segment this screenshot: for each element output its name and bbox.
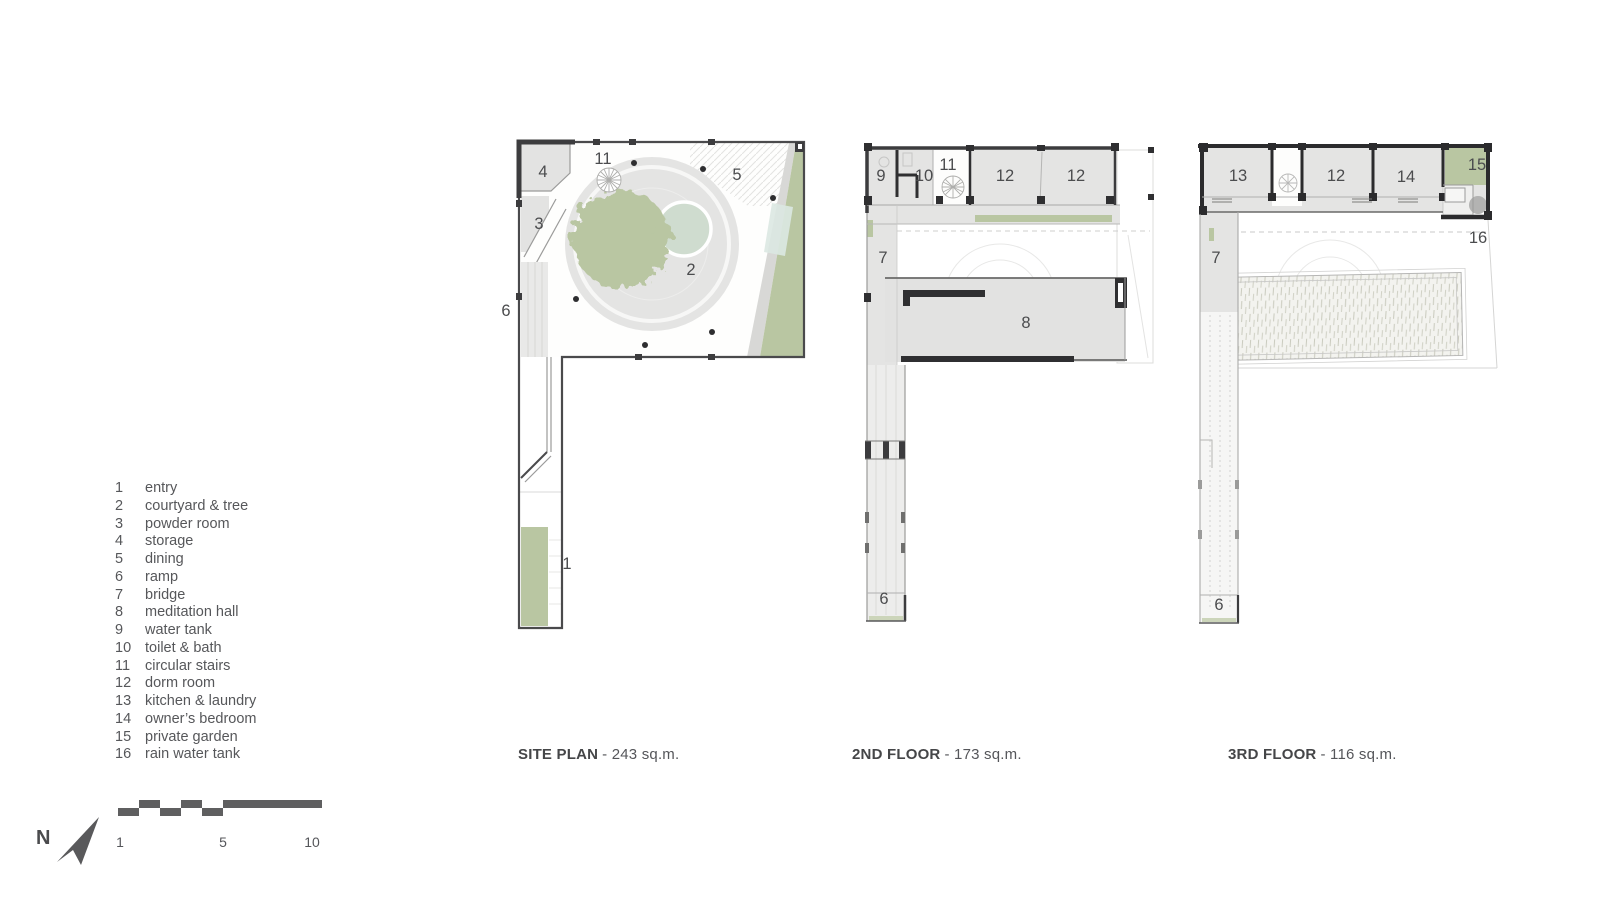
second-floor-title-name: 2ND FLOOR <box>852 746 940 763</box>
third-floor-drawing: 13 12 14 15 16 7 6 <box>1178 130 1508 640</box>
room-label-storage: 4 <box>538 163 547 181</box>
second-floor-title: 2ND FLOOR- 173 sq.m. <box>852 746 1022 763</box>
second-floor-drawing: 9 10 11 12 12 7 8 6 <box>845 130 1165 640</box>
legend-item: 3powder room <box>115 516 257 534</box>
room-label-ramp: 6 <box>1214 596 1223 614</box>
legend-item: 2courtyard & tree <box>115 498 257 516</box>
legend-label: kitchen & laundry <box>145 693 256 709</box>
legend-item: 5dining <box>115 551 257 569</box>
legend-number: 14 <box>115 711 145 729</box>
legend-item: 7bridge <box>115 587 257 605</box>
second-floor-title-area: - 173 sq.m. <box>944 746 1021 763</box>
room-label-entry: 1 <box>562 555 571 573</box>
spiral-stair-icon <box>597 168 621 192</box>
legend-number: 7 <box>115 587 145 605</box>
legend-item: 11circular stairs <box>115 658 257 676</box>
third-floor-title-name: 3RD FLOOR <box>1228 746 1316 763</box>
room-label-courtyard: 2 <box>686 261 695 279</box>
legend-label: dining <box>145 551 184 567</box>
hatched-roof <box>1213 268 1467 364</box>
corner-column <box>795 142 804 152</box>
legend-number: 10 <box>115 640 145 658</box>
legend-number: 9 <box>115 622 145 640</box>
legend-item: 10toilet & bath <box>115 640 257 658</box>
planter-strip <box>975 215 1112 222</box>
room-label-ramp: 6 <box>501 302 510 320</box>
room-label-rain-water-tank: 16 <box>1469 229 1487 247</box>
legend-item: 16rain water tank <box>115 746 257 764</box>
room-label-stairs: 11 <box>939 156 956 174</box>
ramp-strip <box>521 262 548 357</box>
room-label-toilet: 10 <box>915 167 933 185</box>
legend-item: 14owner’s bedroom <box>115 711 257 729</box>
legend-number: 11 <box>115 658 145 676</box>
legend-item: 4storage <box>115 533 257 551</box>
entry-green-strip <box>521 527 548 626</box>
legend-item: 6ramp <box>115 569 257 587</box>
room-label-dorm-1: 12 <box>996 167 1014 185</box>
legend-item: 9water tank <box>115 622 257 640</box>
bridge-junction <box>865 441 905 459</box>
room-label-ramp: 6 <box>879 590 888 608</box>
legend-number: 15 <box>115 729 145 747</box>
legend-number: 5 <box>115 551 145 569</box>
spiral-stair-icon <box>942 176 964 198</box>
room-label-bridge: 7 <box>1211 249 1220 267</box>
legend-label: meditation hall <box>145 604 239 620</box>
legend-label: owner’s bedroom <box>145 711 257 727</box>
legend-label: entry <box>145 480 177 496</box>
legend-number: 2 <box>115 498 145 516</box>
legend-number: 1 <box>115 480 145 498</box>
scale-tick-10: 10 <box>304 834 320 850</box>
legend-item: 13kitchen & laundry <box>115 693 257 711</box>
legend-number: 8 <box>115 604 145 622</box>
legend-item: 12dorm room <box>115 675 257 693</box>
legend-number: 3 <box>115 516 145 534</box>
room-label-dorm: 12 <box>1327 167 1345 185</box>
room-label-bridge: 7 <box>878 249 887 267</box>
scale-tick-5: 5 <box>219 834 227 850</box>
entry-corridor <box>520 357 561 626</box>
scale-tick-1: 1 <box>116 834 124 850</box>
room-label-kitchen: 13 <box>1229 167 1247 185</box>
legend-label: ramp <box>145 569 178 585</box>
legend-label: powder room <box>145 516 230 532</box>
legend-item: 1entry <box>115 480 257 498</box>
room-label-meditation-hall: 8 <box>1021 314 1030 332</box>
legend-number: 12 <box>115 675 145 693</box>
legend-number: 4 <box>115 533 145 551</box>
room-label-water-tank: 9 <box>876 167 885 185</box>
legend-number: 13 <box>115 693 145 711</box>
site-plan-title-area: - 243 sq.m. <box>602 746 679 763</box>
legend-item: 15private garden <box>115 729 257 747</box>
legend-number: 6 <box>115 569 145 587</box>
third-floor-title: 3RD FLOOR- 116 sq.m. <box>1228 746 1397 763</box>
legend-label: bridge <box>145 587 185 603</box>
legend-label: water tank <box>145 622 212 638</box>
site-plan-title: SITE PLAN- 243 sq.m. <box>518 746 679 763</box>
floor-plan-sheet: 1entry 2courtyard & tree 3powder room 4s… <box>0 0 1600 900</box>
legend-label: private garden <box>145 729 238 745</box>
planter-small <box>867 220 873 237</box>
scale-bar: 1 5 10 <box>95 795 345 855</box>
legend: 1entry 2courtyard & tree 3powder room 4s… <box>115 480 257 764</box>
site-plan-title-name: SITE PLAN <box>518 746 598 763</box>
site-plan-drawing: 4 3 11 5 2 6 1 <box>495 130 825 640</box>
legend-label: toilet & bath <box>145 640 222 656</box>
room-label-powder: 3 <box>534 215 543 233</box>
legend-label: dorm room <box>145 675 215 691</box>
legend-label: circular stairs <box>145 658 230 674</box>
legend-label: rain water tank <box>145 746 240 762</box>
spiral-stair-icon <box>1279 174 1297 192</box>
legend-label: storage <box>145 533 193 549</box>
room-label-dorm-2: 12 <box>1067 167 1085 185</box>
room-label-dining: 5 <box>732 166 741 184</box>
room-label-owners-bedroom: 14 <box>1397 168 1415 186</box>
room-label-stairs: 11 <box>594 150 611 168</box>
legend-label: courtyard & tree <box>145 498 248 514</box>
third-floor-title-area: - 116 sq.m. <box>1320 746 1396 763</box>
legend-item: 8meditation hall <box>115 604 257 622</box>
scale-bar-blocks <box>118 800 322 816</box>
ramp-stem <box>865 365 906 621</box>
legend-number: 16 <box>115 746 145 764</box>
room-label-private-garden: 15 <box>1468 156 1486 174</box>
